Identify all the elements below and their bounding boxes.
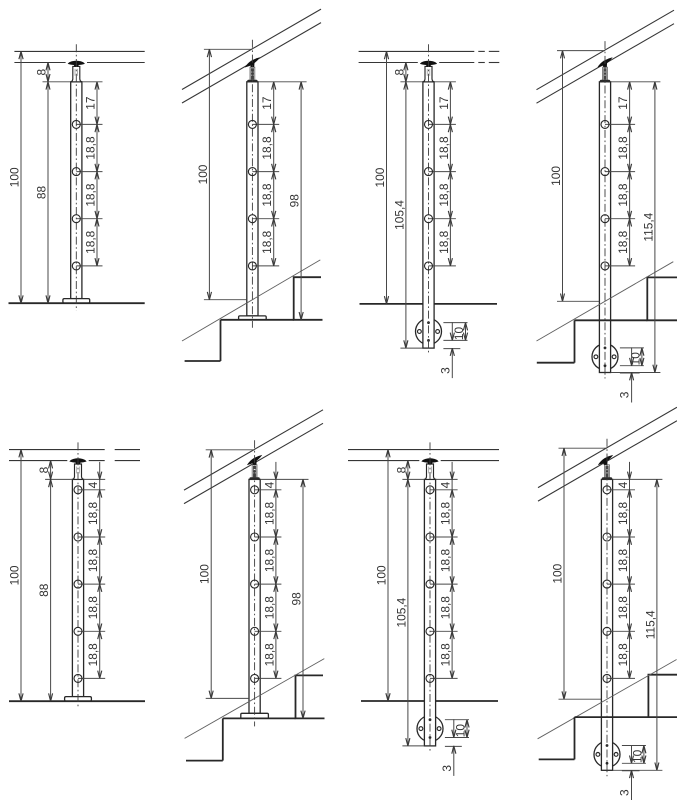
svg-text:8: 8 bbox=[394, 466, 408, 473]
svg-text:18,8: 18,8 bbox=[439, 501, 453, 525]
svg-text:18,8: 18,8 bbox=[616, 643, 630, 667]
svg-text:100: 100 bbox=[374, 565, 388, 585]
svg-text:18,8: 18,8 bbox=[260, 183, 274, 207]
svg-text:18,8: 18,8 bbox=[616, 136, 630, 160]
svg-text:18,8: 18,8 bbox=[439, 596, 453, 620]
svg-text:115,4: 115,4 bbox=[643, 610, 657, 639]
svg-text:17: 17 bbox=[260, 96, 274, 110]
svg-text:3: 3 bbox=[440, 765, 454, 772]
svg-text:115,4: 115,4 bbox=[641, 212, 655, 241]
svg-text:8: 8 bbox=[34, 69, 48, 76]
svg-text:18,8: 18,8 bbox=[616, 596, 630, 620]
svg-text:98: 98 bbox=[288, 194, 302, 208]
svg-text:105,4: 105,4 bbox=[392, 200, 406, 230]
svg-text:10: 10 bbox=[628, 352, 642, 366]
svg-text:88: 88 bbox=[34, 186, 48, 200]
svg-text:18,8: 18,8 bbox=[86, 643, 100, 667]
svg-text:3: 3 bbox=[618, 789, 632, 796]
svg-text:100: 100 bbox=[550, 563, 564, 583]
svg-text:18,8: 18,8 bbox=[262, 643, 276, 667]
svg-text:100: 100 bbox=[549, 166, 563, 186]
svg-text:18,8: 18,8 bbox=[616, 549, 630, 573]
svg-text:100: 100 bbox=[196, 164, 210, 184]
svg-text:18,8: 18,8 bbox=[437, 230, 451, 254]
svg-text:4: 4 bbox=[262, 481, 276, 488]
svg-text:18,8: 18,8 bbox=[262, 501, 276, 525]
svg-text:18,8: 18,8 bbox=[86, 596, 100, 620]
svg-text:18,8: 18,8 bbox=[616, 183, 630, 207]
svg-text:18,8: 18,8 bbox=[616, 501, 630, 525]
svg-text:100: 100 bbox=[373, 167, 387, 187]
svg-text:18,8: 18,8 bbox=[262, 596, 276, 620]
svg-text:8: 8 bbox=[392, 69, 406, 76]
svg-text:100: 100 bbox=[7, 167, 21, 187]
svg-text:100: 100 bbox=[7, 565, 21, 585]
svg-text:18,8: 18,8 bbox=[260, 136, 274, 160]
svg-text:18,8: 18,8 bbox=[86, 501, 100, 525]
svg-text:18,8: 18,8 bbox=[83, 230, 97, 254]
svg-text:17: 17 bbox=[437, 96, 451, 110]
svg-text:4: 4 bbox=[439, 481, 453, 488]
svg-text:4: 4 bbox=[86, 481, 100, 488]
svg-text:18,8: 18,8 bbox=[439, 549, 453, 573]
svg-text:17: 17 bbox=[616, 96, 630, 110]
svg-text:98: 98 bbox=[289, 592, 303, 606]
svg-text:18,8: 18,8 bbox=[262, 549, 276, 573]
svg-text:18,8: 18,8 bbox=[83, 183, 97, 207]
svg-text:18,8: 18,8 bbox=[260, 230, 274, 254]
svg-text:18,8: 18,8 bbox=[616, 230, 630, 254]
svg-text:105,4: 105,4 bbox=[394, 597, 408, 627]
svg-text:18,8: 18,8 bbox=[439, 643, 453, 667]
svg-text:18,8: 18,8 bbox=[437, 183, 451, 207]
svg-text:18,8: 18,8 bbox=[437, 136, 451, 160]
svg-text:18,8: 18,8 bbox=[86, 549, 100, 573]
svg-text:3: 3 bbox=[438, 367, 452, 374]
svg-text:3: 3 bbox=[618, 391, 632, 398]
svg-text:18,8: 18,8 bbox=[83, 136, 97, 160]
svg-text:4: 4 bbox=[616, 481, 630, 488]
svg-text:17: 17 bbox=[83, 96, 97, 110]
svg-text:88: 88 bbox=[37, 583, 51, 597]
svg-text:8: 8 bbox=[37, 466, 51, 473]
svg-text:100: 100 bbox=[198, 564, 212, 584]
